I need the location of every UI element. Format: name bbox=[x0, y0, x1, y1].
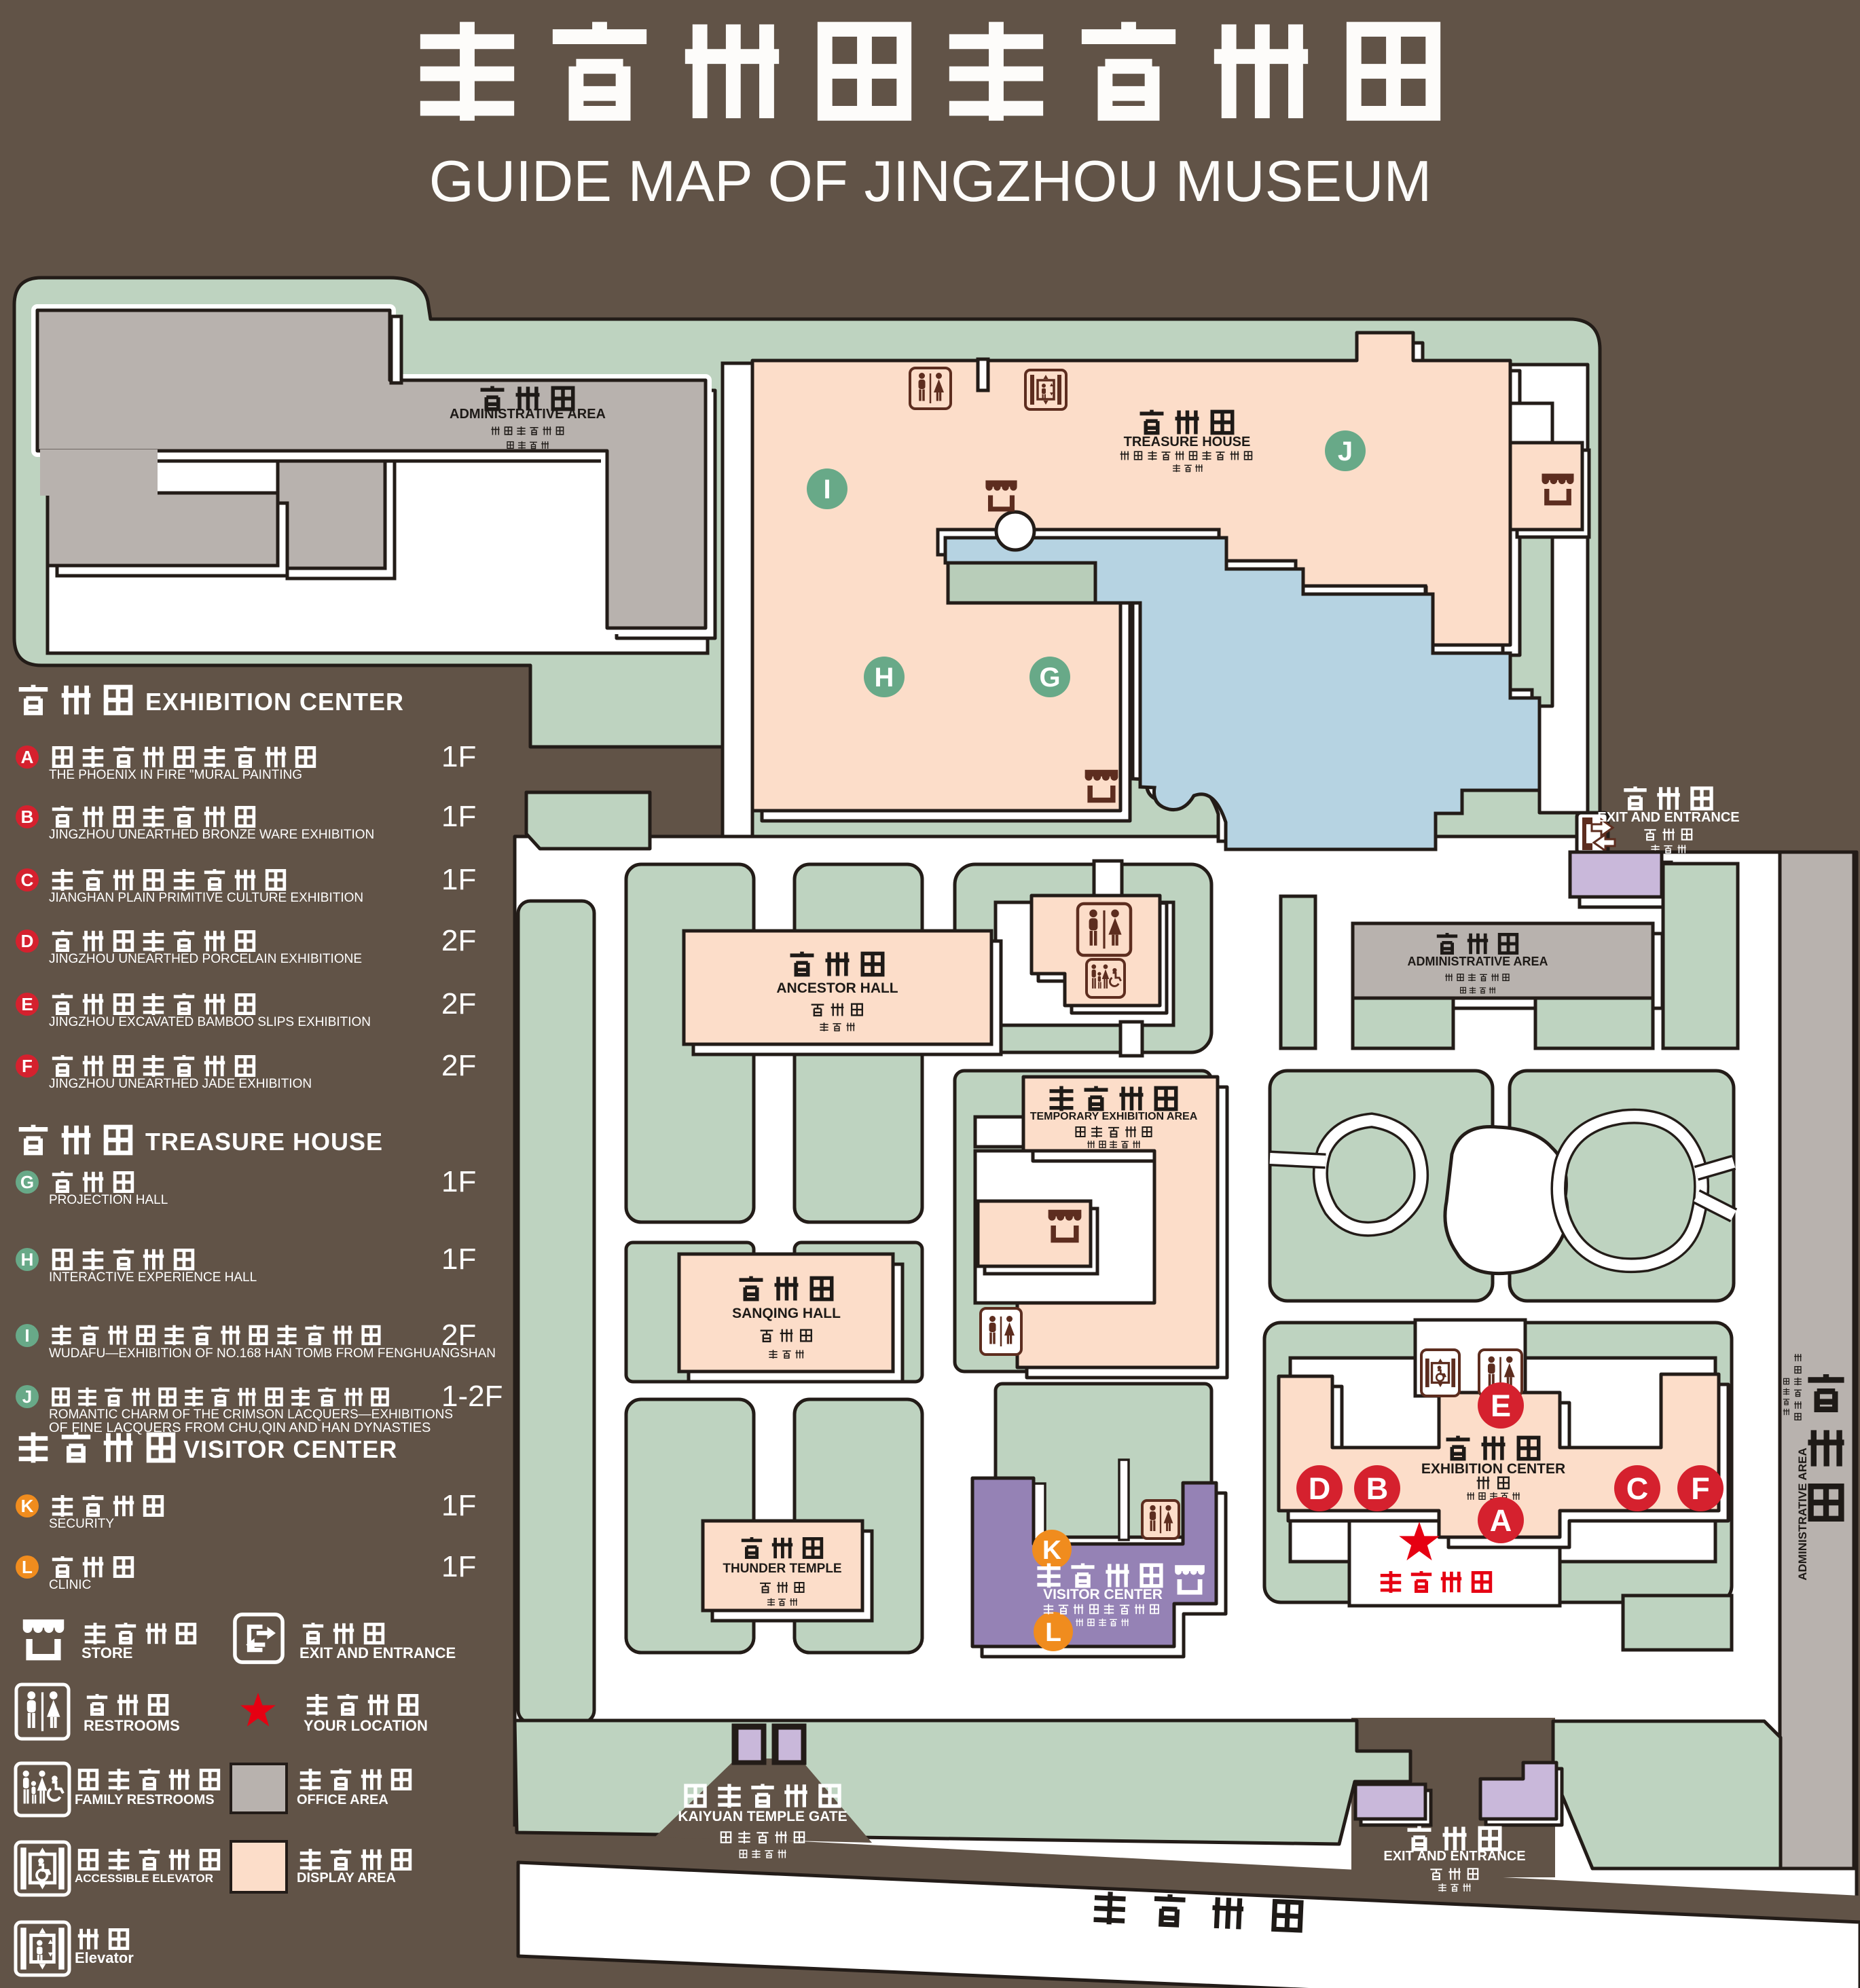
svg-text:KAIYUAN TEMPLE GATE: KAIYUAN TEMPLE GATE bbox=[678, 1809, 847, 1824]
svg-text:K: K bbox=[21, 1496, 34, 1516]
svg-text:JINGZHOU UNEARTHED JADE EXHIBI: JINGZHOU UNEARTHED JADE EXHIBITION bbox=[49, 1077, 312, 1091]
svg-text:YOUR LOCATION: YOUR LOCATION bbox=[304, 1717, 428, 1734]
svg-text:I: I bbox=[24, 1325, 29, 1346]
svg-text:THE PHOENIX IN FIRE "MURAL PAI: THE PHOENIX IN FIRE "MURAL PAINTING bbox=[49, 768, 302, 782]
svg-text:1F: 1F bbox=[441, 1165, 476, 1198]
svg-text:E: E bbox=[21, 994, 33, 1014]
svg-text:PROJECTION HALL: PROJECTION HALL bbox=[49, 1193, 168, 1207]
svg-text:TEMPORARY EXHIBITION AREA: TEMPORARY EXHIBITION AREA bbox=[1030, 1111, 1198, 1122]
svg-text:RESTROOMS: RESTROOMS bbox=[84, 1717, 180, 1734]
svg-text:SECURITY: SECURITY bbox=[49, 1517, 114, 1531]
svg-text:JINGZHOU UNEARTHED BRONZE WARE: JINGZHOU UNEARTHED BRONZE WARE EXHIBITIO… bbox=[49, 828, 374, 842]
svg-text:F: F bbox=[1691, 1471, 1710, 1506]
svg-text:GUIDE MAP OF JINGZHOU MUSEUM: GUIDE MAP OF JINGZHOU MUSEUM bbox=[429, 149, 1432, 214]
svg-text:H: H bbox=[21, 1249, 34, 1270]
svg-text:1F: 1F bbox=[441, 740, 476, 773]
svg-text:D: D bbox=[1309, 1471, 1331, 1506]
svg-text:OF FINE LACQUERS FROM CHU,QIN: OF FINE LACQUERS FROM CHU,QIN AND HAN DY… bbox=[49, 1420, 431, 1435]
svg-text:EXIT AND ENTRANCE: EXIT AND ENTRANCE bbox=[1383, 1849, 1525, 1864]
svg-text:ADMINISTRATIVE AREA: ADMINISTRATIVE AREA bbox=[1408, 955, 1548, 968]
svg-text:EXHIBITION CENTER: EXHIBITION CENTER bbox=[1421, 1461, 1565, 1477]
svg-text:D: D bbox=[21, 931, 34, 951]
svg-text:DISPLAY AREA: DISPLAY AREA bbox=[297, 1871, 396, 1885]
svg-text:EXIT AND ENTRANCE: EXIT AND ENTRANCE bbox=[1597, 810, 1739, 825]
svg-text:J: J bbox=[22, 1386, 32, 1407]
svg-text:J: J bbox=[1338, 437, 1353, 466]
svg-text:C: C bbox=[21, 870, 34, 890]
svg-text:2F: 2F bbox=[441, 987, 476, 1020]
svg-text:G: G bbox=[1039, 663, 1060, 693]
svg-text:VISITOR CENTER: VISITOR CENTER bbox=[1043, 1587, 1163, 1602]
svg-text:A: A bbox=[1490, 1503, 1512, 1538]
svg-text:ANCESTOR HALL: ANCESTOR HALL bbox=[776, 980, 898, 996]
svg-text:F: F bbox=[22, 1056, 33, 1076]
svg-text:A: A bbox=[21, 747, 34, 767]
svg-text:TREASURE HOUSE: TREASURE HOUSE bbox=[1124, 435, 1251, 449]
svg-text:JINGZHOU EXCAVATED BAMBOO SLIP: JINGZHOU EXCAVATED BAMBOO SLIPS EXHIBITI… bbox=[49, 1015, 371, 1029]
svg-text:ADMINISTRATIVE AREA: ADMINISTRATIVE AREA bbox=[1796, 1448, 1809, 1581]
svg-text:WUDAFU—EXHIBITION OF NO.168 HA: WUDAFU—EXHIBITION OF NO.168 HAN TOMB FRO… bbox=[49, 1346, 496, 1361]
svg-text:VISITOR CENTER: VISITOR CENTER bbox=[183, 1435, 397, 1463]
svg-text:ROMANTIC CHARM OF THE CRIMSON: ROMANTIC CHARM OF THE CRIMSON LACQUERS—E… bbox=[49, 1407, 453, 1422]
svg-text:2F: 2F bbox=[441, 1319, 476, 1352]
svg-text:EXHIBITION CENTER: EXHIBITION CENTER bbox=[145, 688, 404, 716]
svg-text:2F: 2F bbox=[441, 1049, 476, 1082]
svg-text:L: L bbox=[1045, 1618, 1061, 1647]
svg-text:B: B bbox=[21, 807, 34, 827]
svg-text:I: I bbox=[823, 475, 831, 504]
svg-text:L: L bbox=[22, 1557, 33, 1577]
svg-text:JIANGHAN PLAIN PRIMITIVE CULTU: JIANGHAN PLAIN PRIMITIVE CULTURE EXHIBIT… bbox=[49, 891, 363, 905]
svg-text:B: B bbox=[1366, 1471, 1389, 1506]
svg-text:SANQING HALL: SANQING HALL bbox=[732, 1306, 841, 1321]
svg-text:1F: 1F bbox=[441, 800, 476, 833]
svg-text:2F: 2F bbox=[441, 924, 476, 957]
svg-text:INTERACTIVE EXPERIENCE HALL: INTERACTIVE EXPERIENCE HALL bbox=[49, 1270, 257, 1285]
svg-text:Elevator: Elevator bbox=[75, 1949, 134, 1966]
svg-text:FAMILY RESTROOMS: FAMILY RESTROOMS bbox=[75, 1792, 215, 1807]
svg-text:THUNDER TEMPLE: THUNDER TEMPLE bbox=[723, 1562, 841, 1576]
svg-text:1F: 1F bbox=[441, 1242, 476, 1276]
svg-text:C: C bbox=[1626, 1471, 1649, 1506]
svg-text:G: G bbox=[20, 1172, 34, 1192]
svg-text:JINGZHOU UNEARTHED PORCELAIN E: JINGZHOU UNEARTHED PORCELAIN EXHIBITIONE bbox=[49, 952, 362, 966]
svg-text:EXIT AND ENTRANCE: EXIT AND ENTRANCE bbox=[299, 1644, 456, 1661]
svg-text:E: E bbox=[1491, 1388, 1511, 1423]
svg-text:STORE: STORE bbox=[81, 1644, 132, 1661]
svg-text:1F: 1F bbox=[441, 1489, 476, 1522]
svg-text:H: H bbox=[875, 663, 894, 693]
svg-text:1F: 1F bbox=[441, 863, 476, 896]
svg-text:ACCESSIBLE ELEVATOR: ACCESSIBLE ELEVATOR bbox=[75, 1872, 213, 1885]
svg-text:TREASURE HOUSE: TREASURE HOUSE bbox=[145, 1128, 383, 1156]
svg-text:OFFICE AREA: OFFICE AREA bbox=[297, 1792, 388, 1807]
svg-text:1-2F: 1-2F bbox=[441, 1380, 503, 1413]
svg-text:CLINIC: CLINIC bbox=[49, 1578, 91, 1592]
svg-text:ADMINISTRATIVE AREA: ADMINISTRATIVE AREA bbox=[450, 407, 606, 422]
svg-text:K: K bbox=[1042, 1536, 1061, 1565]
svg-text:1F: 1F bbox=[441, 1550, 476, 1583]
